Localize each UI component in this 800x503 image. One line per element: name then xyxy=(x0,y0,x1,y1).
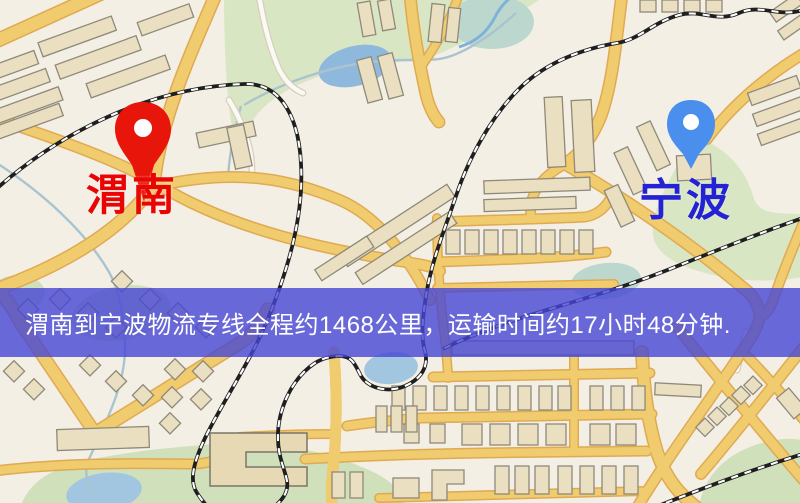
destination-city-label: 宁波 xyxy=(639,179,733,223)
pin-hole xyxy=(134,119,152,137)
map-canvas[interactable] xyxy=(0,0,800,503)
origin-city-label: 渭南 xyxy=(86,175,178,218)
route-info-banner: 渭南到宁波物流专线全程约1468公里，运输时间约17小时48分钟. xyxy=(0,288,800,357)
pin-hole xyxy=(683,114,699,130)
map-view: 渭南 宁波 渭南到宁波物流专线全程约1468公里，运输时间约17小时48分钟. xyxy=(0,0,800,503)
route-info-text: 渭南到宁波物流专线全程约1468公里，运输时间约17小时48分钟. xyxy=(25,305,731,340)
